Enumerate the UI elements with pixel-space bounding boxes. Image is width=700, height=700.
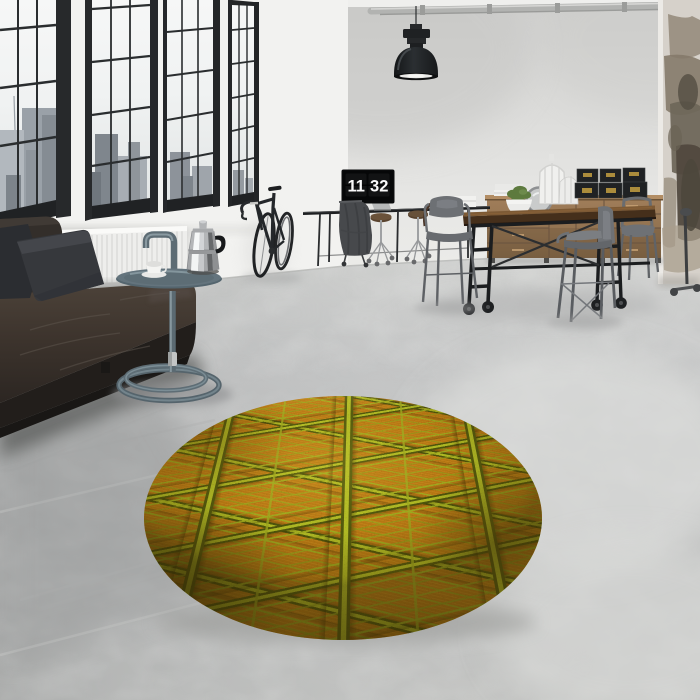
svg-text:11: 11 [347,178,364,196]
svg-text:32: 32 [370,178,388,196]
